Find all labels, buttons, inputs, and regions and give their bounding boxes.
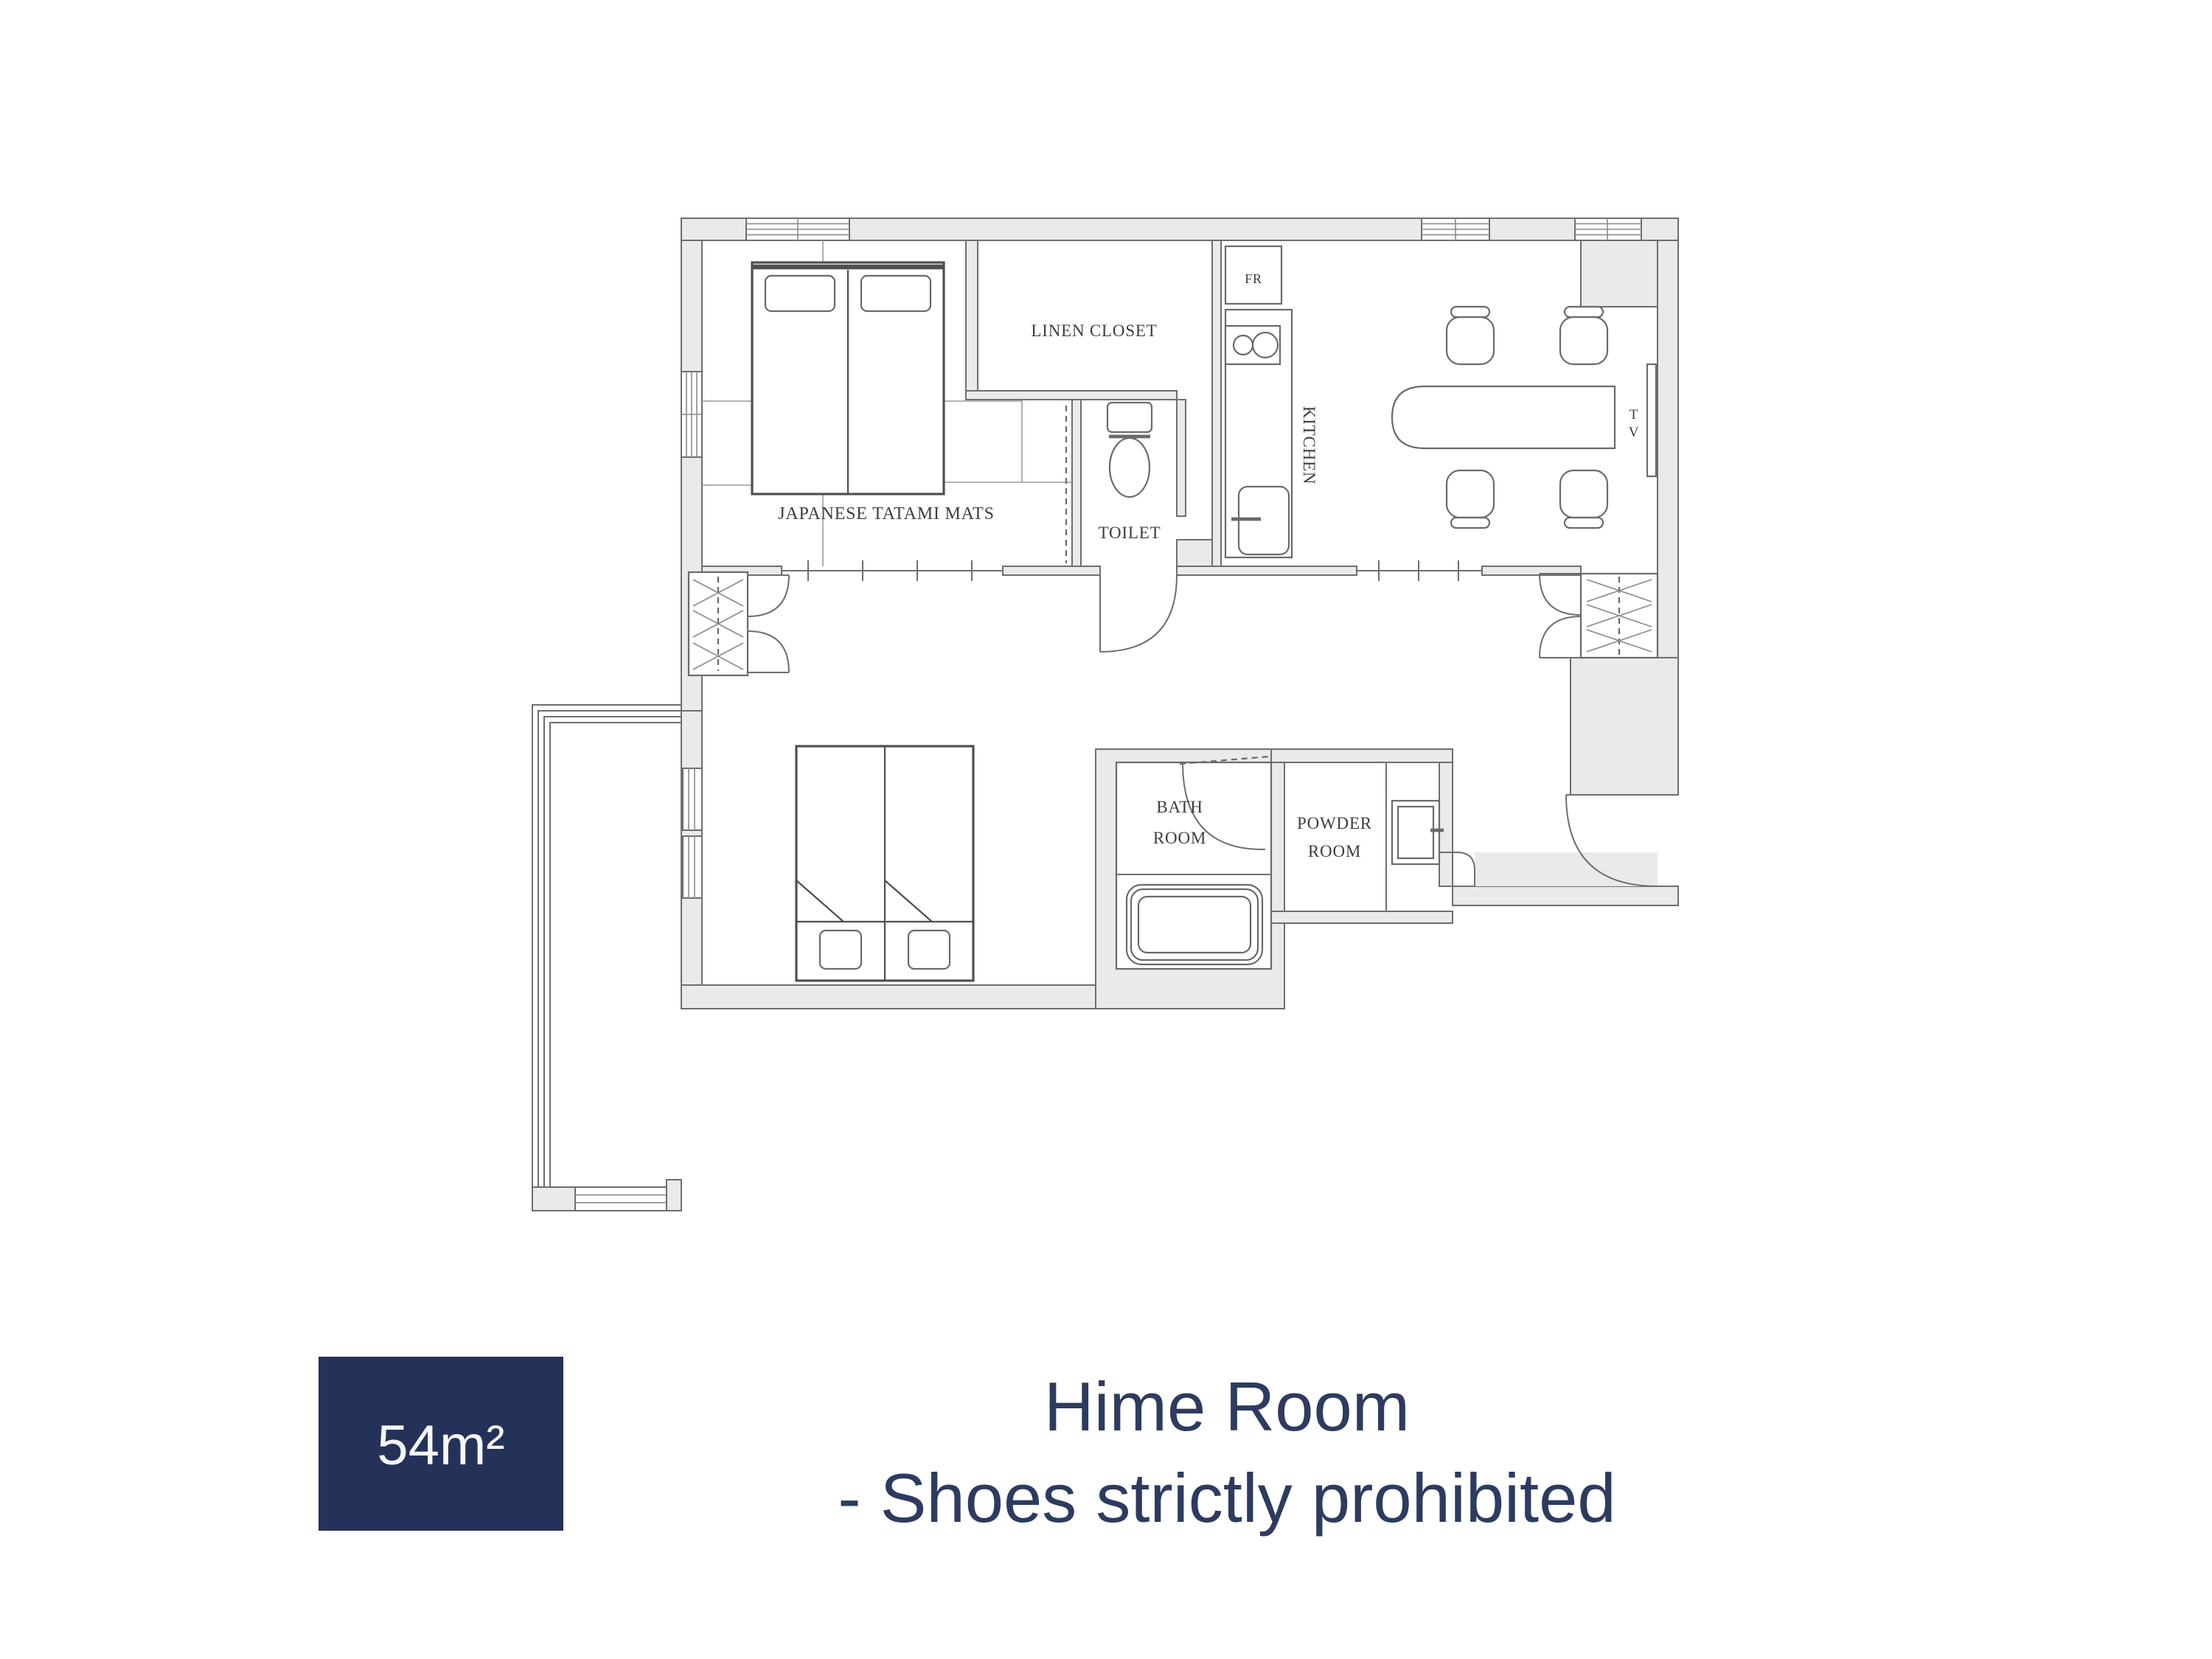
wall-kitchen-west — [1212, 240, 1221, 566]
powder-label-line1: POWDER — [1297, 814, 1372, 832]
wall-powder-top — [1271, 749, 1453, 762]
wall-powder-bottom — [1271, 911, 1453, 923]
genkan-floor — [1475, 852, 1658, 886]
fridge-label: FR — [1245, 271, 1262, 286]
wall-niche-east — [1439, 762, 1453, 886]
closet-right — [1540, 574, 1658, 658]
pillow — [765, 276, 835, 311]
floor-plan-page: JAPANESE TATAMI MATS LINEN CLOSET TOILET… — [0, 0, 2212, 1659]
wall-entrance-bottom — [1453, 886, 1678, 905]
pillow — [861, 276, 931, 311]
toilet-room: TOILET — [1099, 403, 1177, 652]
chair — [1447, 307, 1494, 364]
closet-right-doors — [1540, 574, 1581, 658]
tatami-room-label: JAPANESE TATAMI MATS — [778, 504, 995, 524]
tv-label-v: V — [1629, 425, 1640, 440]
pillow — [908, 931, 950, 969]
linen-closet-label: LINEN CLOSET — [1031, 321, 1157, 340]
closet-left-doors — [748, 575, 789, 672]
wall-toilet-west — [1072, 400, 1081, 566]
bath-label-line1: BATH — [1156, 798, 1203, 816]
living-opening — [1357, 560, 1482, 581]
wall-powder-west — [1271, 762, 1284, 911]
pillow — [820, 931, 861, 969]
window-bedroom-west-1 — [683, 768, 702, 830]
floor-plan-canvas: JAPANESE TATAMI MATS LINEN CLOSET TOILET… — [0, 0, 2212, 1659]
tv-unit: T V — [1629, 364, 1656, 476]
tatami-opening — [782, 560, 1003, 581]
balcony-wall-block — [532, 1187, 575, 1211]
room-title-line1: Hime Room — [1044, 1368, 1410, 1445]
chair — [1560, 307, 1607, 364]
wall-corridor-2 — [1003, 566, 1100, 575]
wall-linen-toilet — [966, 391, 1177, 400]
wall-entry-jamb — [1571, 658, 1678, 795]
toilet-door — [1100, 575, 1177, 652]
bath-label-line2: ROOM — [1153, 829, 1206, 847]
vanity-sink — [1392, 801, 1444, 864]
stove — [1225, 326, 1280, 364]
toilet-fixture — [1107, 403, 1152, 497]
area-badge-text: 54m² — [377, 1414, 504, 1477]
tv-label-t: T — [1630, 407, 1638, 422]
wall-tatami-linen — [966, 240, 978, 391]
balcony-vent — [575, 1187, 667, 1211]
wall-corridor-3 — [1177, 566, 1357, 575]
powder-label-line2: ROOM — [1308, 842, 1361, 860]
kitchen: FR KITCHEN — [1225, 246, 1318, 557]
chair — [1560, 470, 1607, 528]
window-top-middle — [1422, 218, 1489, 240]
chair — [1447, 470, 1494, 528]
window-tatami-west — [681, 372, 702, 457]
dining-table — [1392, 386, 1615, 448]
double-bed — [752, 262, 944, 494]
powder-room: POWDER ROOM — [1297, 762, 1444, 911]
window-top-right — [1575, 218, 1641, 240]
window-top-left — [746, 218, 849, 240]
wall-toilet-east — [1177, 400, 1186, 516]
wall-bedroom-bottom — [681, 985, 1096, 1009]
bathtub — [1127, 885, 1262, 964]
linen-closet: LINEN CLOSET — [1031, 321, 1157, 340]
tatami-room: JAPANESE TATAMI MATS — [702, 240, 1072, 566]
balcony-wall-column — [667, 1180, 681, 1211]
footer: 54m² Hime Room - Shoes strictly prohibit… — [319, 1357, 1616, 1537]
kitchen-label: KITCHEN — [1300, 406, 1318, 485]
bath-room: BATH ROOM — [1116, 757, 1271, 969]
toilet-label: TOILET — [1099, 524, 1161, 542]
kitchen-sink — [1231, 487, 1289, 554]
balcony — [532, 705, 681, 1211]
closet-left — [689, 572, 789, 675]
window-bedroom-west-2 — [683, 836, 702, 898]
dining-area: T V — [1392, 307, 1656, 528]
room-title-line2: - Shoes strictly prohibited — [838, 1459, 1615, 1537]
wall-notch-topright — [1581, 240, 1658, 307]
partition-openings — [782, 560, 1482, 581]
bedroom — [796, 746, 973, 981]
